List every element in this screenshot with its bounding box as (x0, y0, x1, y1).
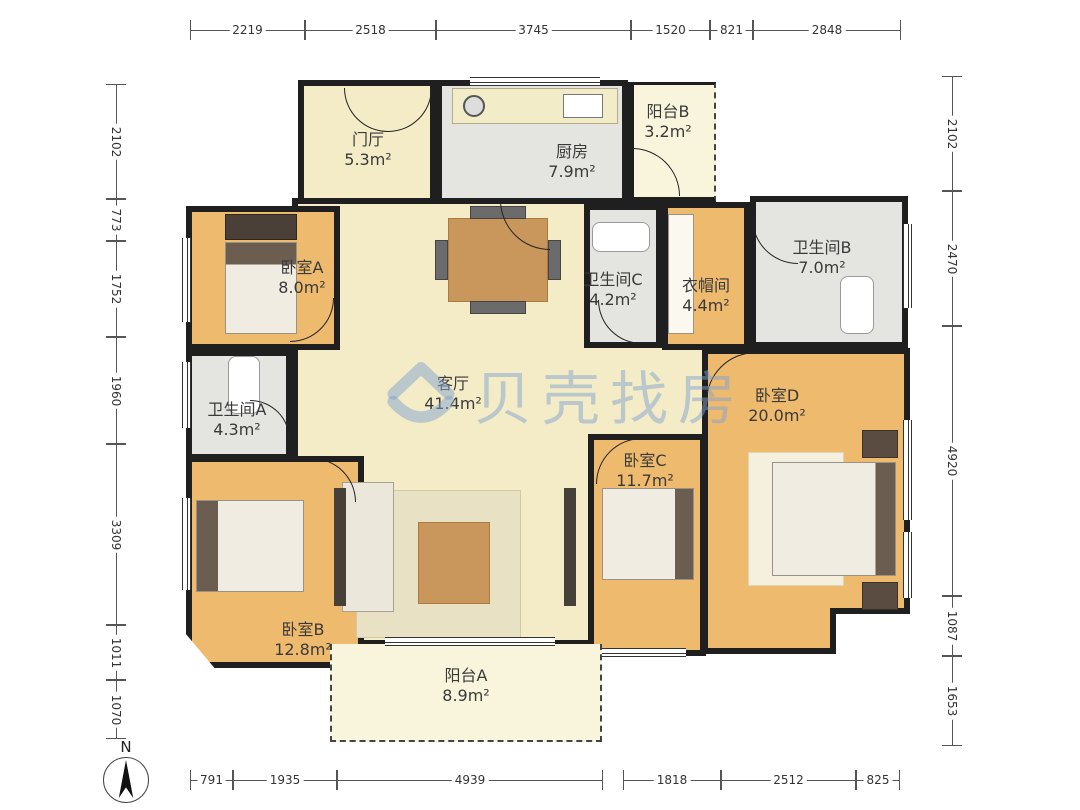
dimension-segment: 2518 (305, 20, 436, 40)
room-name: 门厅 (344, 130, 391, 150)
window (182, 498, 191, 590)
dimension-segment: 1070 (106, 680, 126, 739)
dimension-value: 1935 (267, 773, 304, 787)
room-name: 卧室A (278, 258, 325, 278)
dimension-segment: 2102 (942, 76, 962, 191)
room-name: 阳台B (644, 102, 691, 122)
dimension-value: 2102 (945, 115, 959, 152)
bed-icon (772, 462, 896, 576)
room-area: 41.4m² (424, 394, 482, 414)
coffee-table-icon (418, 522, 490, 604)
room-area: 4.3m² (208, 420, 267, 440)
window (903, 420, 912, 520)
dimension-value: 4939 (452, 773, 489, 787)
dimension-segment: 4920 (942, 326, 962, 596)
compass-needle-icon (114, 760, 138, 798)
tv-cabinet (334, 488, 346, 606)
room-label-bath-b: 卫生间B7.0m² (793, 238, 852, 278)
room-name: 卫生间C (583, 270, 642, 290)
ruler-left: 2102 773 1752 1960 3309 1011 1070 (106, 84, 126, 739)
dimension-value: 1070 (109, 691, 123, 728)
compass: N (98, 738, 154, 803)
room-name: 卧室D (748, 386, 806, 406)
dimension-value: 3745 (515, 23, 552, 37)
wardrobe-icon (668, 214, 694, 334)
room-label-bedroom-c: 卧室C11.7m² (616, 451, 674, 491)
room-area: 7.0m² (793, 258, 852, 278)
nightstand-icon (862, 582, 898, 610)
dimension-value: 1653 (945, 683, 959, 720)
toilet-icon (840, 276, 874, 334)
dimension-segment: 3309 (106, 444, 126, 625)
room-area: 3.2m² (644, 122, 691, 142)
room-area: 20.0m² (748, 406, 806, 426)
ruler-top: 2219 2518 3745 1520 821 2848 (190, 20, 901, 40)
room-name: 阳台A (442, 666, 489, 686)
dimension-value: 2848 (809, 23, 846, 37)
dimension-value: 1818 (654, 773, 691, 787)
north-label: N (98, 738, 154, 756)
bed-icon (196, 500, 304, 592)
room-label-balcony-a: 阳台A8.9m² (442, 666, 489, 706)
nightstand-icon (862, 430, 898, 458)
sink-icon (563, 94, 603, 118)
dimension-segment: 2848 (753, 20, 901, 40)
room-label-entry: 门厅5.3m² (344, 130, 391, 170)
kitchen-counter (452, 88, 618, 124)
dimension-segment: 1011 (106, 625, 126, 680)
dimension-segment: 2470 (942, 191, 962, 326)
bed-icon (602, 488, 694, 580)
dimension-value: 825 (864, 773, 893, 787)
dimension-segment: 821 (710, 20, 753, 40)
room-area: 5.3m² (344, 150, 391, 170)
room-area: 4.2m² (583, 290, 642, 310)
dimension-segment: 1818 (623, 770, 721, 790)
dimension-value: 2512 (770, 773, 807, 787)
dimension-value: 2219 (229, 23, 266, 37)
window (903, 224, 912, 308)
bedroom-d-step-notch (830, 608, 910, 654)
window (182, 362, 191, 428)
room-label-bedroom-a: 卧室A8.0m² (278, 258, 325, 298)
dimension-segment: 1653 (942, 656, 962, 746)
floor-plan: 2219 2518 3745 1520 821 2848 791 1935 49… (0, 0, 1080, 810)
dimension-segment: 825 (856, 770, 900, 790)
room-name: 厨房 (548, 142, 595, 162)
window (470, 77, 600, 86)
dimension-value: 2102 (109, 123, 123, 160)
dimension-segment: 3745 (436, 20, 631, 40)
dimension-value: 821 (717, 23, 746, 37)
bathtub-icon (592, 222, 650, 252)
room-name: 卫生间A (208, 400, 267, 420)
room-name: 卧室C (616, 451, 674, 471)
dimension-segment: 773 (106, 199, 126, 241)
window (903, 532, 912, 598)
dimension-segment: 2102 (106, 84, 126, 199)
dimension-value: 1960 (109, 372, 123, 409)
dimension-segment: 4939 (337, 770, 603, 790)
dimension-segment: 1752 (106, 241, 126, 337)
dimension-value: 2518 (352, 23, 389, 37)
room-label-closet: 衣帽间4.4m² (682, 276, 730, 316)
room-area: 4.4m² (682, 296, 730, 316)
dimension-value: 773 (109, 206, 123, 235)
dimension-value: 1011 (109, 634, 123, 671)
dimension-value: 3309 (109, 516, 123, 553)
room-name: 衣帽间 (682, 276, 730, 296)
dimension-value: 1087 (945, 608, 959, 645)
window (602, 648, 686, 657)
ruler-right: 2102 2470 4920 1087 1653 (942, 76, 962, 746)
room-area: 7.9m² (548, 162, 595, 182)
room-name: 卫生间B (793, 238, 852, 258)
room-label-bedroom-b: 卧室B12.8m² (274, 620, 332, 660)
room-label-living: 客厅41.4m² (424, 374, 482, 414)
room-label-balcony-b: 阳台B3.2m² (644, 102, 691, 142)
compass-circle (103, 757, 149, 803)
dimension-segment: 1960 (106, 337, 126, 444)
dimension-segment: 2219 (190, 20, 305, 40)
dimension-segment: 2512 (721, 770, 856, 790)
ruler-gap (603, 770, 623, 790)
room-area: 8.0m² (278, 278, 325, 298)
room-area: 11.7m² (616, 471, 674, 491)
room-area: 8.9m² (442, 686, 489, 706)
room-label-bath-a: 卫生间A4.3m² (208, 400, 267, 440)
chair-icon (435, 240, 448, 280)
dimension-segment: 1520 (631, 20, 710, 40)
dimension-segment: 1935 (233, 770, 337, 790)
dimension-value: 791 (197, 773, 226, 787)
dimension-value: 1520 (652, 23, 689, 37)
dimension-segment: 791 (190, 770, 233, 790)
wardrobe-icon (225, 214, 297, 240)
room-name: 卧室B (274, 620, 332, 640)
room-name: 客厅 (424, 374, 482, 394)
room-label-kitchen: 厨房7.9m² (548, 142, 595, 182)
room-label-bath-c: 卫生间C4.2m² (583, 270, 642, 310)
room-area: 12.8m² (274, 640, 332, 660)
chair-icon (470, 301, 526, 314)
window (385, 637, 555, 646)
dimension-value: 4920 (945, 443, 959, 480)
stove-icon (463, 95, 485, 117)
tv-cabinet (564, 488, 576, 606)
dimension-value: 2470 (945, 240, 959, 277)
room-label-bedroom-d: 卧室D20.0m² (748, 386, 806, 426)
dimension-segment: 1087 (942, 596, 962, 656)
ruler-bottom: 791 1935 4939 1818 2512 825 (190, 770, 900, 790)
window (182, 238, 191, 322)
dimension-value: 1752 (109, 271, 123, 308)
